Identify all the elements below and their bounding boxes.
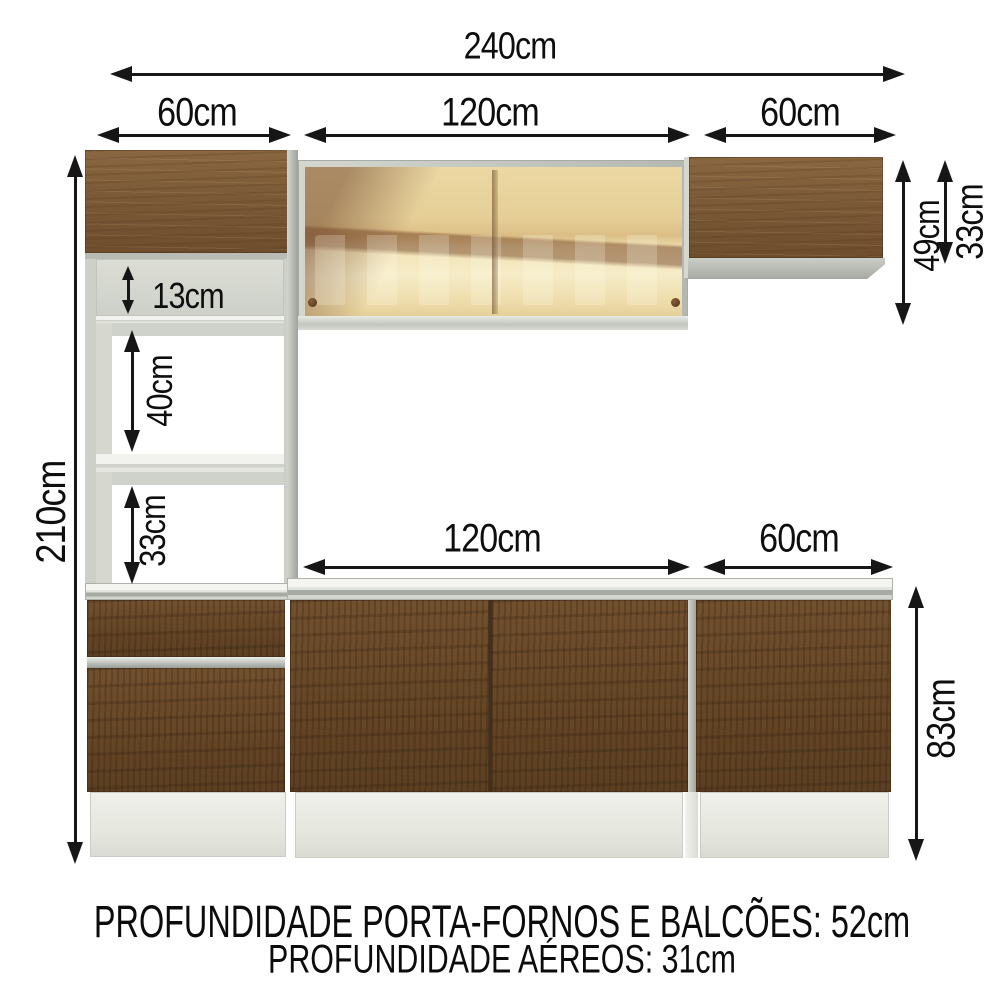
tall-cabinet-shelf-1 xyxy=(96,316,284,323)
dim-label-base-middle-width: 120cm xyxy=(443,517,541,562)
base-door-2 xyxy=(492,600,688,792)
tall-cabinet-counter-strip xyxy=(85,583,295,600)
dim-label-upper-left-width: 60cm xyxy=(157,91,237,136)
base-door-3 xyxy=(696,600,891,792)
right-wall-cabinet-door xyxy=(689,157,883,258)
dim-label-wall-cabinet-right-height: 33cm xyxy=(950,184,993,260)
dim-label-overall-height: 210cm xyxy=(27,461,75,564)
base-plinth-foot xyxy=(685,792,698,858)
right-wall-cabinet-shelf xyxy=(688,258,885,279)
base-door-1 xyxy=(290,600,489,792)
glass-cabinet-bottom-band xyxy=(298,316,688,330)
dim-label-upper-right-width: 60cm xyxy=(760,91,840,136)
dim-label-base-right-width: 60cm xyxy=(759,517,839,562)
footer-depth-wall: PROFUNDIDADE AÉREOS: 31cm xyxy=(268,938,736,983)
glass-left-knob xyxy=(308,298,317,307)
base-plinth-main xyxy=(295,792,683,858)
tall-cabinet-drawer-front xyxy=(87,600,285,657)
glass-right-knob xyxy=(671,298,680,307)
dim-label-upper-middle-width: 120cm xyxy=(441,91,539,136)
base-countertop xyxy=(287,578,893,600)
dim-label-niche-top: 13cm xyxy=(152,275,223,317)
tall-cabinet-side-post xyxy=(287,150,298,600)
dim-label-total-width: 240cm xyxy=(464,26,557,69)
base-plinth-right xyxy=(700,792,889,858)
dim-label-niche-bottom: 33cm xyxy=(132,495,174,566)
dim-label-base-height: 83cm xyxy=(920,679,965,759)
tall-cabinet-top-door xyxy=(85,150,288,253)
base-section-edge xyxy=(688,600,696,792)
kitchen-dimension-diagram: 240cm 60cm 120cm 60cm 210cm 13cm 40cm 33… xyxy=(0,0,1000,1000)
tall-cabinet-handle-strip xyxy=(87,657,285,668)
dim-label-niche-middle: 40cm xyxy=(139,355,181,426)
tall-cabinet-shelf-2 xyxy=(96,454,284,472)
tall-cabinet-plinth xyxy=(90,792,286,857)
tall-cabinet-lower-door xyxy=(87,668,285,792)
glass-door-divider xyxy=(492,170,498,314)
